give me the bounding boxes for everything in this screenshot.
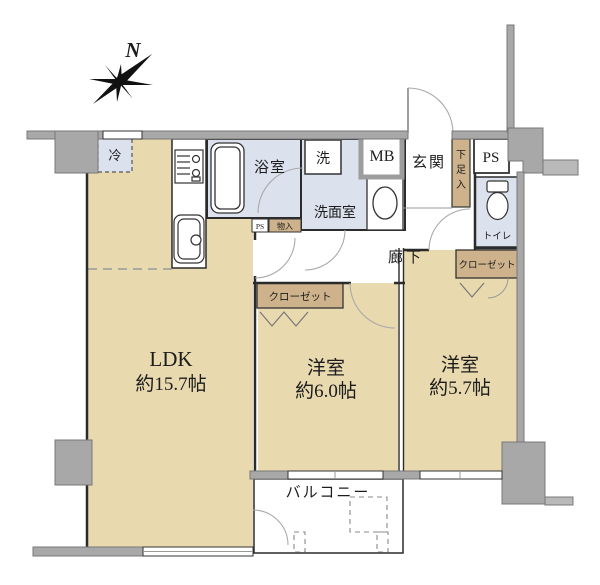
toilet-icon (487, 181, 508, 220)
compass-label: N (124, 38, 141, 62)
sink-icon (174, 215, 204, 263)
label-ldk: LDK (149, 347, 192, 371)
stove-icon (175, 150, 203, 183)
bedroom-divider-wall (399, 248, 404, 471)
label-fridge: 冷 (108, 148, 121, 163)
label-storage-small: 物入 (277, 221, 293, 231)
label-bedroom1-size: 約6.0帖 (295, 380, 357, 402)
label-entrance: 玄関 (412, 154, 446, 171)
label-bedroom2: 洋室 (441, 354, 479, 376)
floor-plan-drawing: N LDK 約15.7帖 洋室 約6.0帖 洋室 約5.7帖 バルコニー 浴室 … (0, 0, 600, 585)
label-hallway: 廊下 (388, 249, 424, 266)
label-closet-second: クローゼット (458, 259, 515, 271)
svg-text:足: 足 (456, 164, 466, 176)
basin-icon (367, 177, 403, 230)
label-toilet: トイレ (483, 232, 512, 242)
label-pipe-space-small: PS (256, 222, 264, 231)
compass-rose (89, 54, 153, 104)
label-balcony: バルコニー (286, 485, 371, 501)
label-bath: 浴室 (254, 159, 286, 176)
floor-plan: N LDK 約15.7帖 洋室 約6.0帖 洋室 約5.7帖 バルコニー 浴室 … (0, 0, 600, 585)
label-washer: 洗 (316, 151, 330, 167)
bathtub-icon (211, 143, 244, 213)
label-bedroom1: 洋室 (307, 357, 345, 379)
label-washroom: 洗面室 (314, 204, 356, 221)
svg-text:下: 下 (456, 150, 466, 161)
svg-text:入: 入 (456, 180, 466, 191)
label-bedroom2-size: 約5.7帖 (429, 377, 491, 399)
label-shoe-box: 下 足 入 (456, 150, 466, 191)
label-ldk-size: 約15.7帖 (135, 373, 206, 395)
label-pipe-space: PS (483, 150, 500, 166)
label-closet-main: クローゼット (269, 291, 332, 303)
label-meter-box: MB (370, 148, 395, 165)
